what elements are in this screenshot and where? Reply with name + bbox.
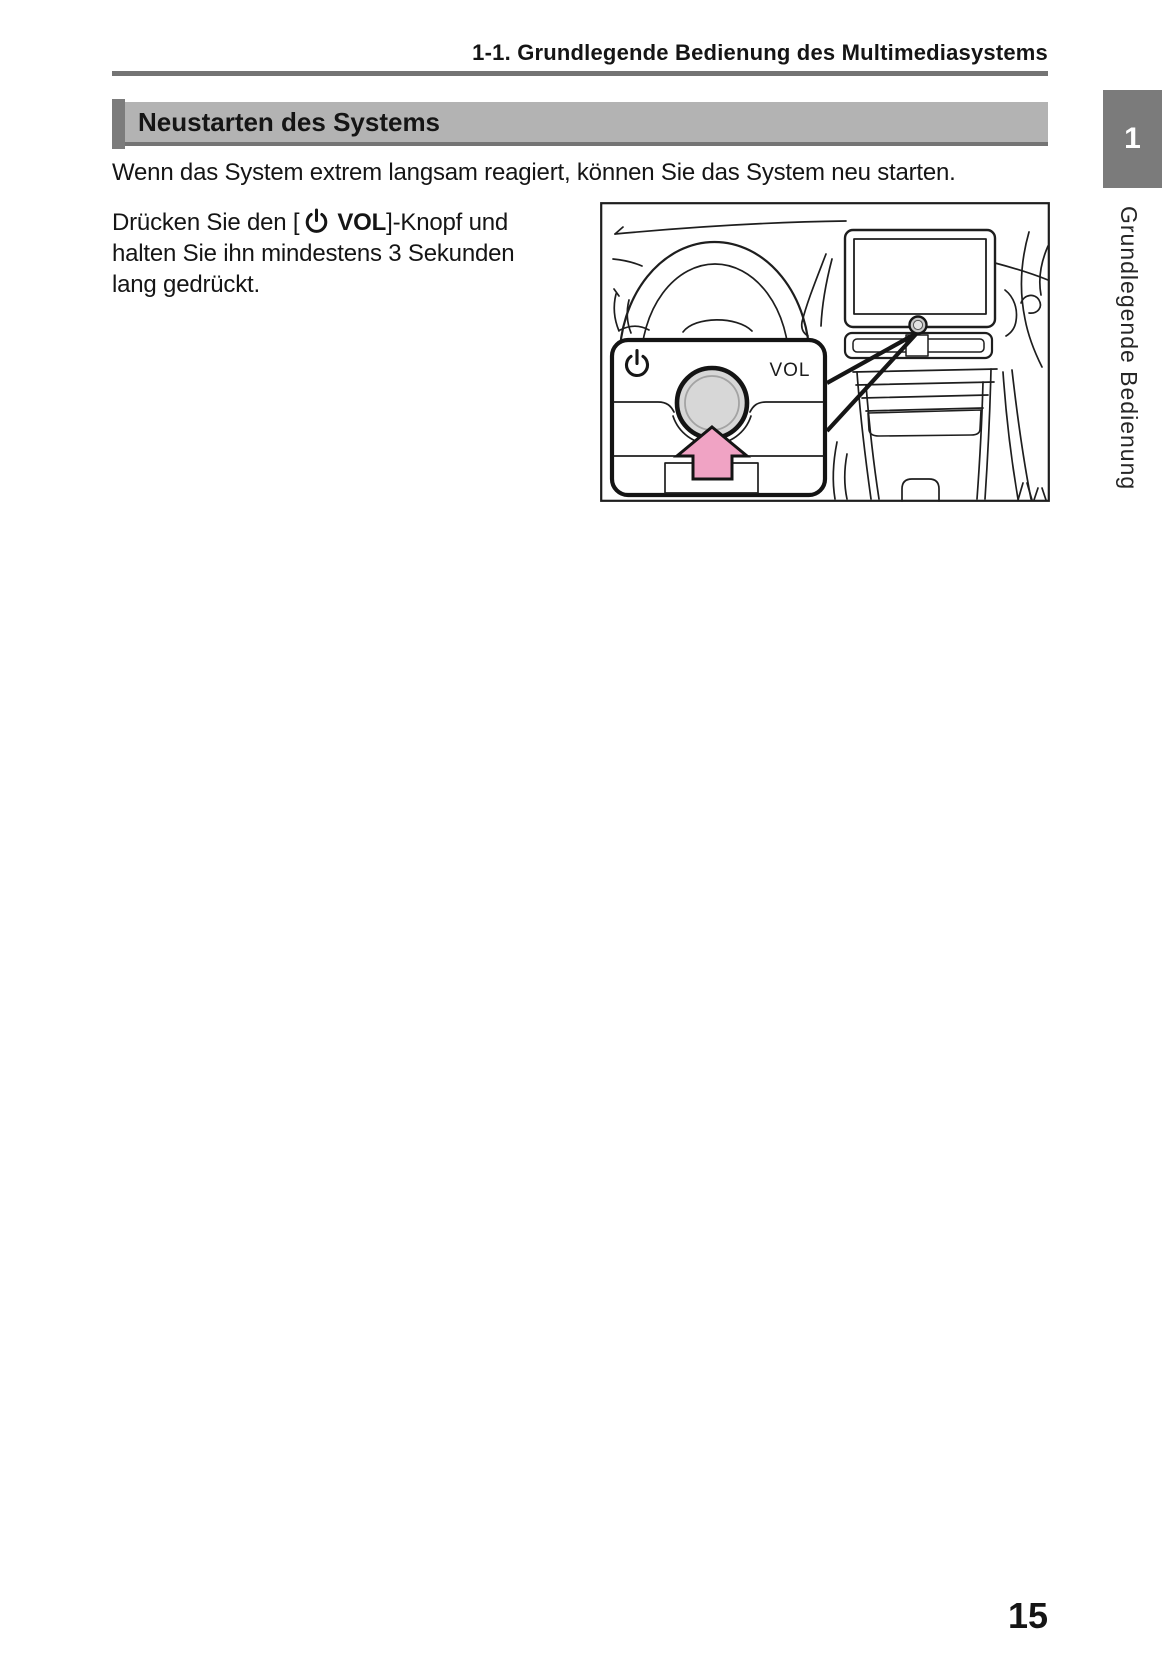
dashboard-figure: VOL <box>600 202 1050 502</box>
dash-volume-knob <box>910 317 927 334</box>
running-header: 1-1. Grundlegende Bedienung des Multimed… <box>112 40 1048 66</box>
section-heading-bar: Neustarten des Systems <box>112 102 1048 146</box>
instruction-text-prefix: Drücken Sie den [ <box>112 209 299 236</box>
instruction-line-1: Drücken Sie den [ VOL]-Knopf und <box>112 207 592 238</box>
callout-vol-label: VOL <box>769 360 810 381</box>
section-title: Neustarten des Systems <box>138 102 440 142</box>
instruction-paragraph: Drücken Sie den [ VOL]-Knopf und halten … <box>112 207 592 300</box>
vol-label: VOL <box>337 209 386 236</box>
header-rule <box>112 71 1048 76</box>
instruction-text-suffix: ]-Knopf und <box>386 209 508 236</box>
chapter-vertical-label: Grundlegende Bedienung <box>1106 206 1142 496</box>
instruction-line-2: halten Sie ihn mindestens 3 Sekunden <box>112 238 592 269</box>
intro-paragraph: Wenn das System extrem langsam reagiert,… <box>112 157 1052 188</box>
chapter-number: 1 <box>1124 122 1141 156</box>
section-heading-accent <box>112 99 125 149</box>
manual-page: 1-1. Grundlegende Bedienung des Multimed… <box>0 0 1165 1653</box>
instruction-line-3: lang gedrückt. <box>112 269 592 300</box>
chapter-tab: 1 <box>1103 90 1162 188</box>
power-icon <box>304 207 329 234</box>
page-number: 15 <box>900 1595 1048 1637</box>
